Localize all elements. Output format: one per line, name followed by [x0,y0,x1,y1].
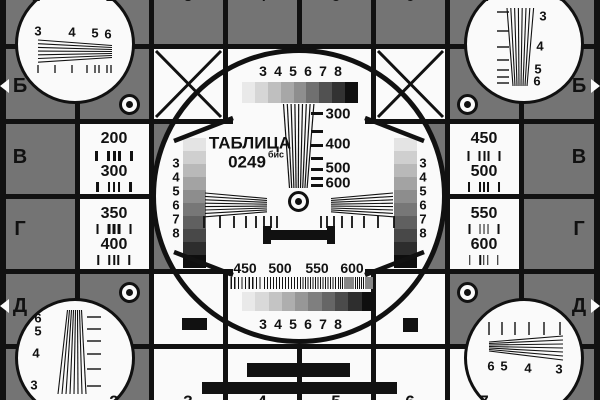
freq-label: 600 [340,261,363,275]
column-digit-top: 1 [32,0,40,4]
grid-segment [165,269,233,274]
grayscale-step [394,164,417,177]
row-label-left: Г [14,219,25,239]
grid-vline [594,0,600,400]
center-bullseye-icon [288,191,309,212]
scale-label: 7 [172,213,179,226]
test-card: ТАБЛИЦА 0249 бис 3 4 5 6 7 8 3 4 5 6 7 8… [0,0,600,400]
scale-label: 7 [419,213,426,226]
grayscale-step [294,82,307,103]
grayscale-step [269,292,282,311]
column-digit-top: 5 [332,0,340,4]
grayscale-step [362,292,375,311]
black-rect-marker [182,318,207,330]
scale-label: 3 [419,157,426,170]
frequency-strip-550 [300,277,336,289]
grayscale-step [295,292,308,311]
scale-label: 4 [419,171,426,184]
wedge-label: 3 [555,363,562,376]
wedge-label: 4 [68,26,75,39]
grayscale-step [255,292,268,311]
row-label-right: В [572,147,586,167]
card-number-suffix: бис [268,151,284,160]
scale-label: 4 [274,64,282,78]
frequency-strip-450 [227,277,262,289]
wedge-label: 5 [500,360,507,373]
scale-label: 5 [289,64,297,78]
grating-icon [95,151,133,161]
edge-arrow-icon [0,79,9,93]
scale-label: 7 [319,317,327,331]
grating-icon [97,224,132,234]
grayscale-step [183,255,206,268]
grating-icon [469,255,498,265]
grid-segment [165,119,233,124]
wedge-label: 3 [539,10,546,23]
wedge-label: 3 [34,25,41,38]
grayscale-step [394,203,417,216]
corner-circle-bottom-right [464,298,584,400]
scale-label: 8 [172,227,179,240]
scale-label: 8 [334,64,342,78]
cell-value: 600 [471,237,498,253]
column-digit-top: 6 [406,0,414,4]
frequency-strip-500 [264,277,298,289]
grayscale-step [183,203,206,216]
row-label-right: Б [572,76,586,96]
edge-arrow-icon [0,299,9,313]
cell-value: 550 [471,206,498,222]
column-digit-top: 8 [558,0,566,4]
grayscale-step [242,82,255,103]
scale-label: 7 [319,64,327,78]
tvl-label: 400 [325,137,350,152]
scale-label: 6 [419,199,426,212]
grating-icon [469,224,500,234]
grid-segment [365,269,433,274]
grayscale-step [335,292,348,311]
scale-label: 5 [172,185,179,198]
column-digit-bottom: 7 [479,393,488,400]
wedge-label: 3 [30,379,37,392]
grayscale-staircase-left [183,138,206,268]
tvl-label: 500 [325,161,350,176]
scale-label: 6 [172,199,179,212]
cell-value: 500 [471,164,498,180]
grayscale-step [183,190,206,203]
scale-label: 5 [289,317,297,331]
row-label-right: Д [572,296,586,316]
grayscale-step [319,82,332,103]
grid-vline [0,0,6,400]
grayscale-step [394,177,417,190]
grayscale-step [394,138,417,151]
tvl-label: 600 [325,176,350,191]
tvl-label: 300 [325,107,350,122]
row-label-right: Г [573,219,584,239]
bullseye-icon [457,282,478,303]
grayscale-step [322,292,335,311]
bullseye-icon [457,94,478,115]
cell-value: 450 [471,131,498,147]
grating-icon [468,182,500,192]
tvl-dash [311,184,323,187]
grayscale-step [332,82,345,103]
card-number: 0249 [228,154,266,171]
grating-icon [97,255,130,265]
cell-value: 200 [101,131,128,147]
ibeam-bar [267,230,331,240]
grayscale-staircase-bottom [242,292,375,311]
frequency-strip-600 [338,277,373,289]
grid-segment [223,49,228,119]
wedge-label: 5 [91,27,98,40]
grayscale-step [255,82,268,103]
grayscale-step [394,216,417,229]
column-digit-bottom: 6 [405,393,414,400]
grayscale-step [183,138,206,151]
bullseye-icon [119,282,140,303]
grayscale-step [183,216,206,229]
scale-label: 8 [419,227,426,240]
scale-label: 3 [259,64,267,78]
corner-circle-top-left [15,0,135,104]
tvl-dash [311,130,323,133]
column-digit-bottom: 4 [257,393,266,400]
grayscale-step [268,82,281,103]
grayscale-step [183,164,206,177]
row-label-left: В [13,147,27,167]
grayscale-step [281,82,294,103]
scale-label: 6 [304,64,312,78]
grayscale-step [242,292,255,311]
scale-label: 3 [172,157,179,170]
grayscale-step [345,82,358,103]
grating-icon [96,182,132,192]
grayscale-step [183,177,206,190]
column-digit-top: 4 [258,0,266,4]
cell-value: 350 [101,206,128,222]
wedge-label: 6 [104,28,111,41]
wedge-label: 4 [536,40,543,53]
grayscale-step [394,242,417,255]
wedge-label: 6 [487,360,494,373]
row-label-left: Б [13,76,27,96]
freq-label: 450 [233,261,256,275]
tvl-dash [311,177,323,180]
grid-segment [371,49,376,119]
row-label-left: Д [13,296,27,316]
column-digit-bottom: 2 [109,393,118,400]
grayscale-step [308,292,321,311]
grayscale-staircase-top [242,82,358,103]
scale-label: 8 [334,317,342,331]
scale-label: 3 [259,317,267,331]
bottom-bar-long [202,382,397,394]
column-digit-top: 3 [184,0,192,4]
scale-label: 4 [274,317,282,331]
wedge-label: 6 [533,75,540,88]
grayscale-step [282,292,295,311]
cell-value: 300 [101,164,128,180]
column-digit-bottom: 5 [331,393,340,400]
column-digit-top: 7 [484,0,492,4]
freq-label: 500 [268,261,291,275]
freq-label: 550 [305,261,328,275]
bottom-bar-short [247,363,350,377]
corner-circle-top-right [464,0,584,104]
scale-label: 6 [304,317,312,331]
grayscale-step [183,229,206,242]
grayscale-step [183,242,206,255]
tvl-dash [311,144,323,147]
edge-arrow-icon [591,299,600,313]
grayscale-step [348,292,361,311]
wedge-label: 4 [32,347,39,360]
grating-icon [468,151,501,161]
tvl-dash [311,112,323,115]
grayscale-step [394,229,417,242]
grayscale-step [394,255,417,268]
tvl-dash [311,157,323,160]
bullseye-icon [119,94,140,115]
wedge-label: 4 [524,362,531,375]
grayscale-step [183,151,206,164]
scale-label: 5 [419,185,426,198]
grid-segment [365,119,433,124]
column-digit-top: 2 [106,0,114,4]
wedge-label: 5 [34,325,41,338]
grayscale-step [394,151,417,164]
grayscale-staircase-right [394,138,417,268]
scale-label: 4 [172,171,179,184]
edge-arrow-icon [591,79,600,93]
cell-value: 400 [101,237,128,253]
tvl-dash [311,168,323,171]
black-square-marker [403,318,418,332]
column-digit-bottom: 3 [183,393,192,400]
grayscale-step [306,82,319,103]
grayscale-step [394,190,417,203]
